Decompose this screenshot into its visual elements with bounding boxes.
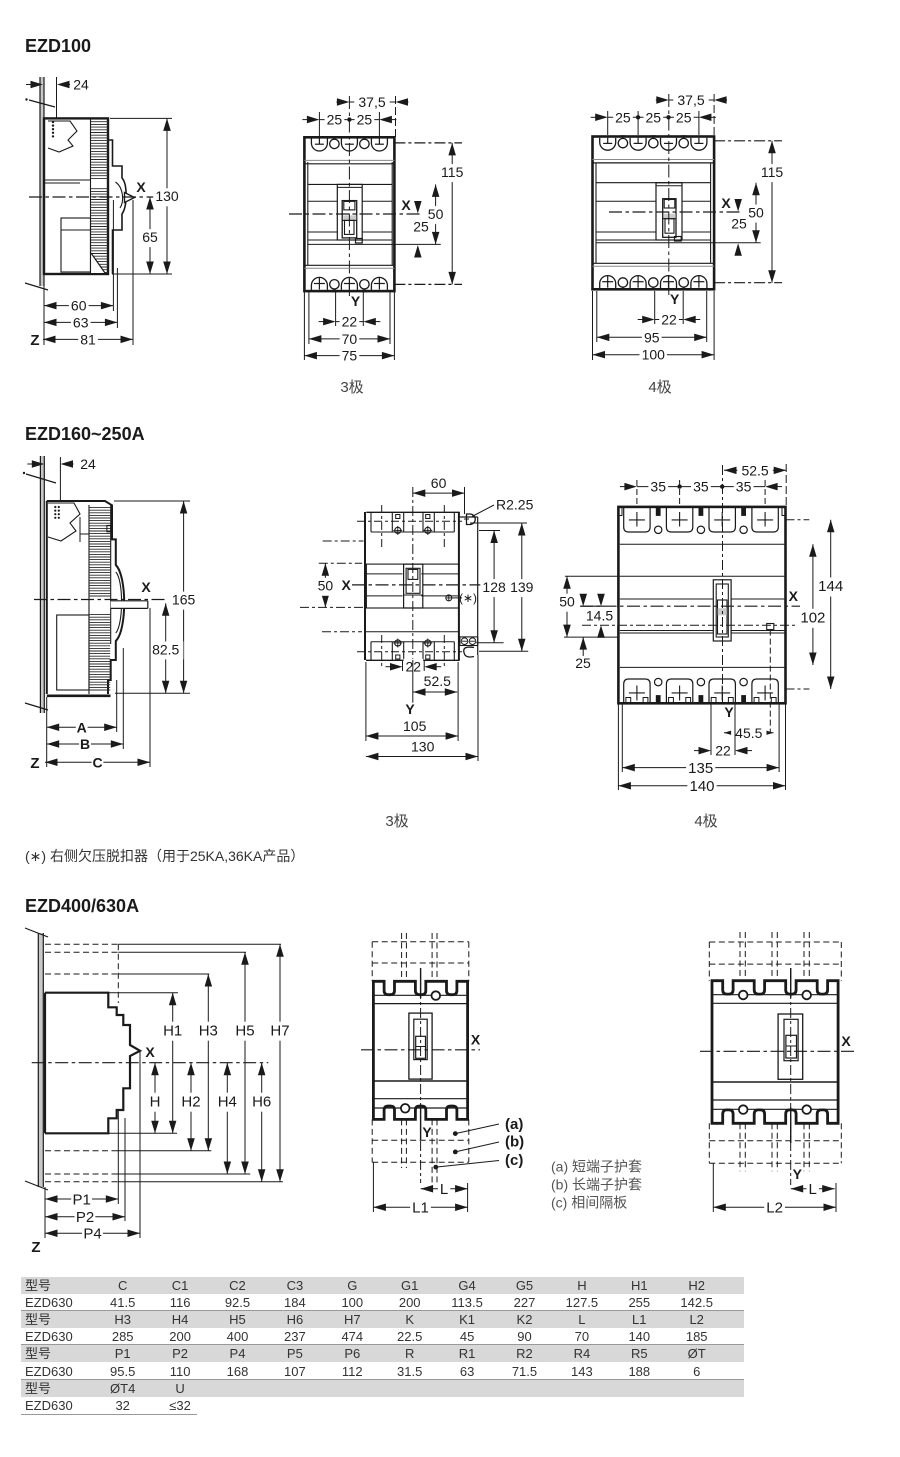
svg-text:H5: H5 bbox=[235, 1022, 254, 1039]
svg-text:Y: Y bbox=[724, 704, 734, 720]
svg-text:EZD100: EZD100 bbox=[25, 36, 91, 56]
svg-text:25: 25 bbox=[676, 109, 692, 125]
svg-text:22: 22 bbox=[406, 659, 422, 675]
svg-text:52.5: 52.5 bbox=[424, 673, 451, 689]
svg-text:Y: Y bbox=[405, 701, 415, 717]
svg-text:128: 128 bbox=[482, 579, 506, 595]
svg-text:Z: Z bbox=[31, 1239, 40, 1256]
svg-text:4极: 4极 bbox=[648, 379, 671, 396]
svg-text:3极: 3极 bbox=[340, 379, 363, 396]
svg-text:(∗) 右侧欠压脱扣器（用于25KA,36KA产品）: (∗) 右侧欠压脱扣器（用于25KA,36KA产品） bbox=[25, 848, 304, 864]
svg-text:P2: P2 bbox=[76, 1209, 94, 1226]
svg-text:(c) 相间隔板: (c) 相间隔板 bbox=[551, 1195, 627, 1211]
svg-text:Y: Y bbox=[351, 293, 361, 309]
svg-text:60: 60 bbox=[71, 298, 87, 314]
svg-text:81: 81 bbox=[80, 331, 96, 347]
svg-text:25: 25 bbox=[731, 215, 747, 231]
svg-text:25: 25 bbox=[615, 109, 631, 125]
svg-text:60: 60 bbox=[431, 475, 447, 491]
svg-text:X: X bbox=[401, 197, 411, 213]
svg-text:Y: Y bbox=[793, 1166, 803, 1182]
svg-text:H: H bbox=[150, 1093, 161, 1110]
svg-text:45.5: 45.5 bbox=[735, 725, 762, 741]
svg-text:H4: H4 bbox=[218, 1093, 237, 1110]
svg-text:EZD160~250A: EZD160~250A bbox=[25, 424, 145, 444]
svg-text:L1: L1 bbox=[412, 1200, 429, 1217]
svg-text:63: 63 bbox=[73, 314, 89, 330]
svg-text:102: 102 bbox=[800, 610, 825, 627]
svg-text:X: X bbox=[342, 577, 352, 593]
svg-text:Y: Y bbox=[670, 291, 680, 307]
svg-text:(c): (c) bbox=[505, 1152, 523, 1169]
svg-text:165: 165 bbox=[172, 592, 196, 608]
svg-text:65: 65 bbox=[142, 229, 158, 245]
svg-text:H7: H7 bbox=[270, 1022, 289, 1039]
svg-text:H3: H3 bbox=[199, 1022, 218, 1039]
svg-text:3极: 3极 bbox=[385, 813, 408, 830]
svg-text:140: 140 bbox=[689, 778, 714, 795]
svg-text:(a) 短端子护套: (a) 短端子护套 bbox=[551, 1158, 642, 1174]
svg-text:95: 95 bbox=[644, 329, 660, 345]
svg-text:Y: Y bbox=[422, 1124, 432, 1140]
svg-text:50: 50 bbox=[748, 205, 764, 221]
svg-text:25: 25 bbox=[413, 219, 429, 235]
svg-text:52.5: 52.5 bbox=[741, 462, 768, 478]
svg-text:(∗): (∗) bbox=[459, 591, 477, 605]
svg-text:24: 24 bbox=[73, 77, 89, 93]
svg-text:P4: P4 bbox=[83, 1226, 101, 1243]
svg-text:35: 35 bbox=[693, 479, 709, 495]
svg-text:25: 25 bbox=[357, 112, 373, 128]
svg-text:130: 130 bbox=[155, 188, 179, 204]
svg-text:H6: H6 bbox=[252, 1093, 271, 1110]
svg-text:22: 22 bbox=[661, 312, 677, 328]
svg-text:X: X bbox=[141, 579, 151, 595]
svg-text:Z: Z bbox=[30, 755, 39, 772]
svg-text:(b): (b) bbox=[505, 1134, 524, 1151]
svg-text:24: 24 bbox=[80, 456, 96, 472]
svg-text:50: 50 bbox=[559, 594, 575, 610]
svg-text:82.5: 82.5 bbox=[152, 641, 179, 657]
svg-text:75: 75 bbox=[342, 348, 358, 364]
svg-text:EZD400/630A: EZD400/630A bbox=[25, 896, 139, 916]
svg-text:100: 100 bbox=[642, 347, 666, 363]
svg-text:L: L bbox=[809, 1181, 817, 1198]
svg-text:135: 135 bbox=[688, 760, 713, 777]
svg-text:B: B bbox=[80, 736, 90, 752]
svg-text:25: 25 bbox=[646, 109, 662, 125]
svg-text:X: X bbox=[136, 179, 146, 195]
svg-text:35: 35 bbox=[736, 479, 752, 495]
svg-text:L: L bbox=[440, 1181, 448, 1198]
svg-text:25: 25 bbox=[327, 112, 343, 128]
svg-text:X: X bbox=[721, 195, 731, 211]
svg-text:P1: P1 bbox=[73, 1191, 91, 1208]
svg-text:70: 70 bbox=[342, 331, 358, 347]
svg-text:37,5: 37,5 bbox=[358, 94, 385, 110]
svg-text:(b) 长端子护套: (b) 长端子护套 bbox=[551, 1177, 642, 1193]
svg-text:22: 22 bbox=[715, 743, 731, 759]
svg-text:105: 105 bbox=[403, 718, 427, 734]
svg-text:L2: L2 bbox=[766, 1200, 783, 1217]
svg-text:(a): (a) bbox=[505, 1116, 523, 1133]
svg-text:H1: H1 bbox=[163, 1022, 182, 1039]
svg-text:4极: 4极 bbox=[694, 813, 717, 830]
svg-text:144: 144 bbox=[818, 578, 843, 595]
svg-text:X: X bbox=[789, 588, 799, 604]
svg-text:Z: Z bbox=[30, 332, 39, 349]
svg-text:37,5: 37,5 bbox=[677, 92, 704, 108]
svg-text:C: C bbox=[92, 754, 102, 770]
svg-text:X: X bbox=[471, 1032, 481, 1048]
svg-text:115: 115 bbox=[441, 164, 464, 180]
svg-text:A: A bbox=[77, 719, 87, 735]
svg-text:115: 115 bbox=[761, 164, 784, 180]
svg-text:14.5: 14.5 bbox=[586, 607, 613, 623]
svg-text:X: X bbox=[145, 1044, 155, 1060]
svg-text:35: 35 bbox=[650, 479, 666, 495]
svg-text:25: 25 bbox=[575, 655, 591, 671]
svg-text:139: 139 bbox=[510, 579, 534, 595]
svg-text:22: 22 bbox=[342, 314, 358, 330]
svg-text:50: 50 bbox=[318, 578, 334, 594]
svg-text:R2.25: R2.25 bbox=[496, 496, 534, 512]
svg-text:H2: H2 bbox=[181, 1093, 200, 1110]
svg-text:130: 130 bbox=[411, 739, 435, 755]
svg-text:X: X bbox=[841, 1033, 851, 1049]
